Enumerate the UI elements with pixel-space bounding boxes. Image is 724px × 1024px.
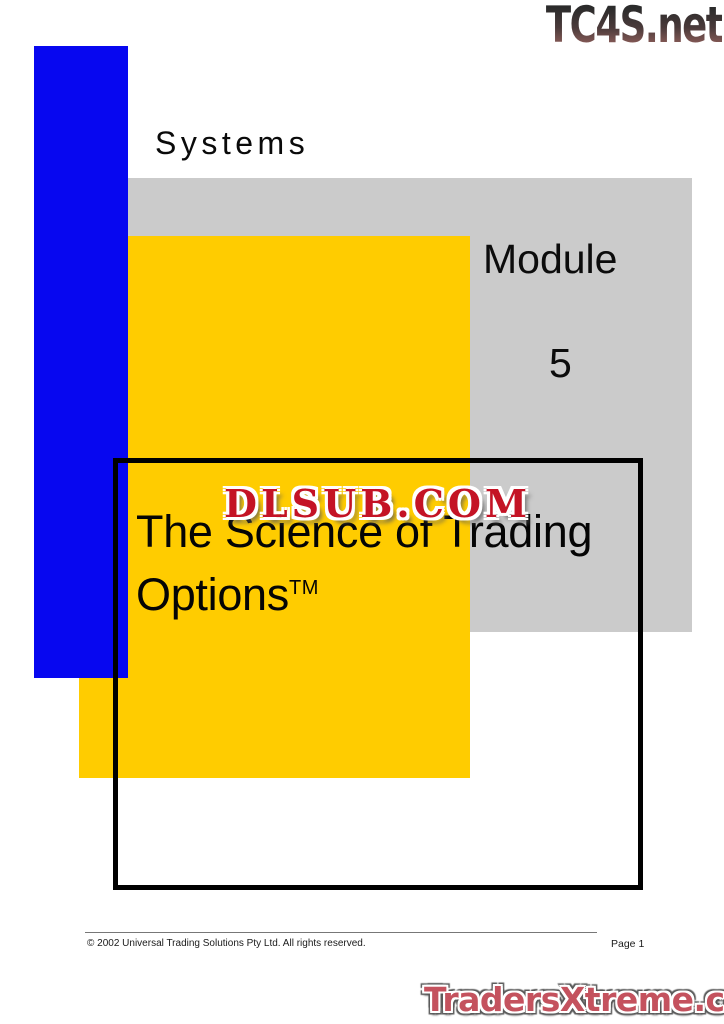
page-number: Page 1 xyxy=(611,938,644,950)
tc4s-site-logo: TC4S.net xyxy=(546,0,722,50)
module-label: Module xyxy=(483,237,617,282)
series-label: Systems xyxy=(155,124,309,162)
tradersxtreme-site-logo: TradersXtreme.com xyxy=(424,982,724,1018)
page-title-line2: Options xyxy=(136,569,289,620)
document-cover-page: TC4S.net Systems Module 5 The Science of… xyxy=(0,0,724,1024)
footer-divider xyxy=(85,932,597,933)
dlsub-watermark-logo: DLSUB.COM xyxy=(224,483,531,525)
trademark-superscript: TM xyxy=(289,577,319,599)
module-number: 5 xyxy=(549,341,572,386)
copyright-text: © 2002 Universal Trading Solutions Pty L… xyxy=(87,938,366,949)
